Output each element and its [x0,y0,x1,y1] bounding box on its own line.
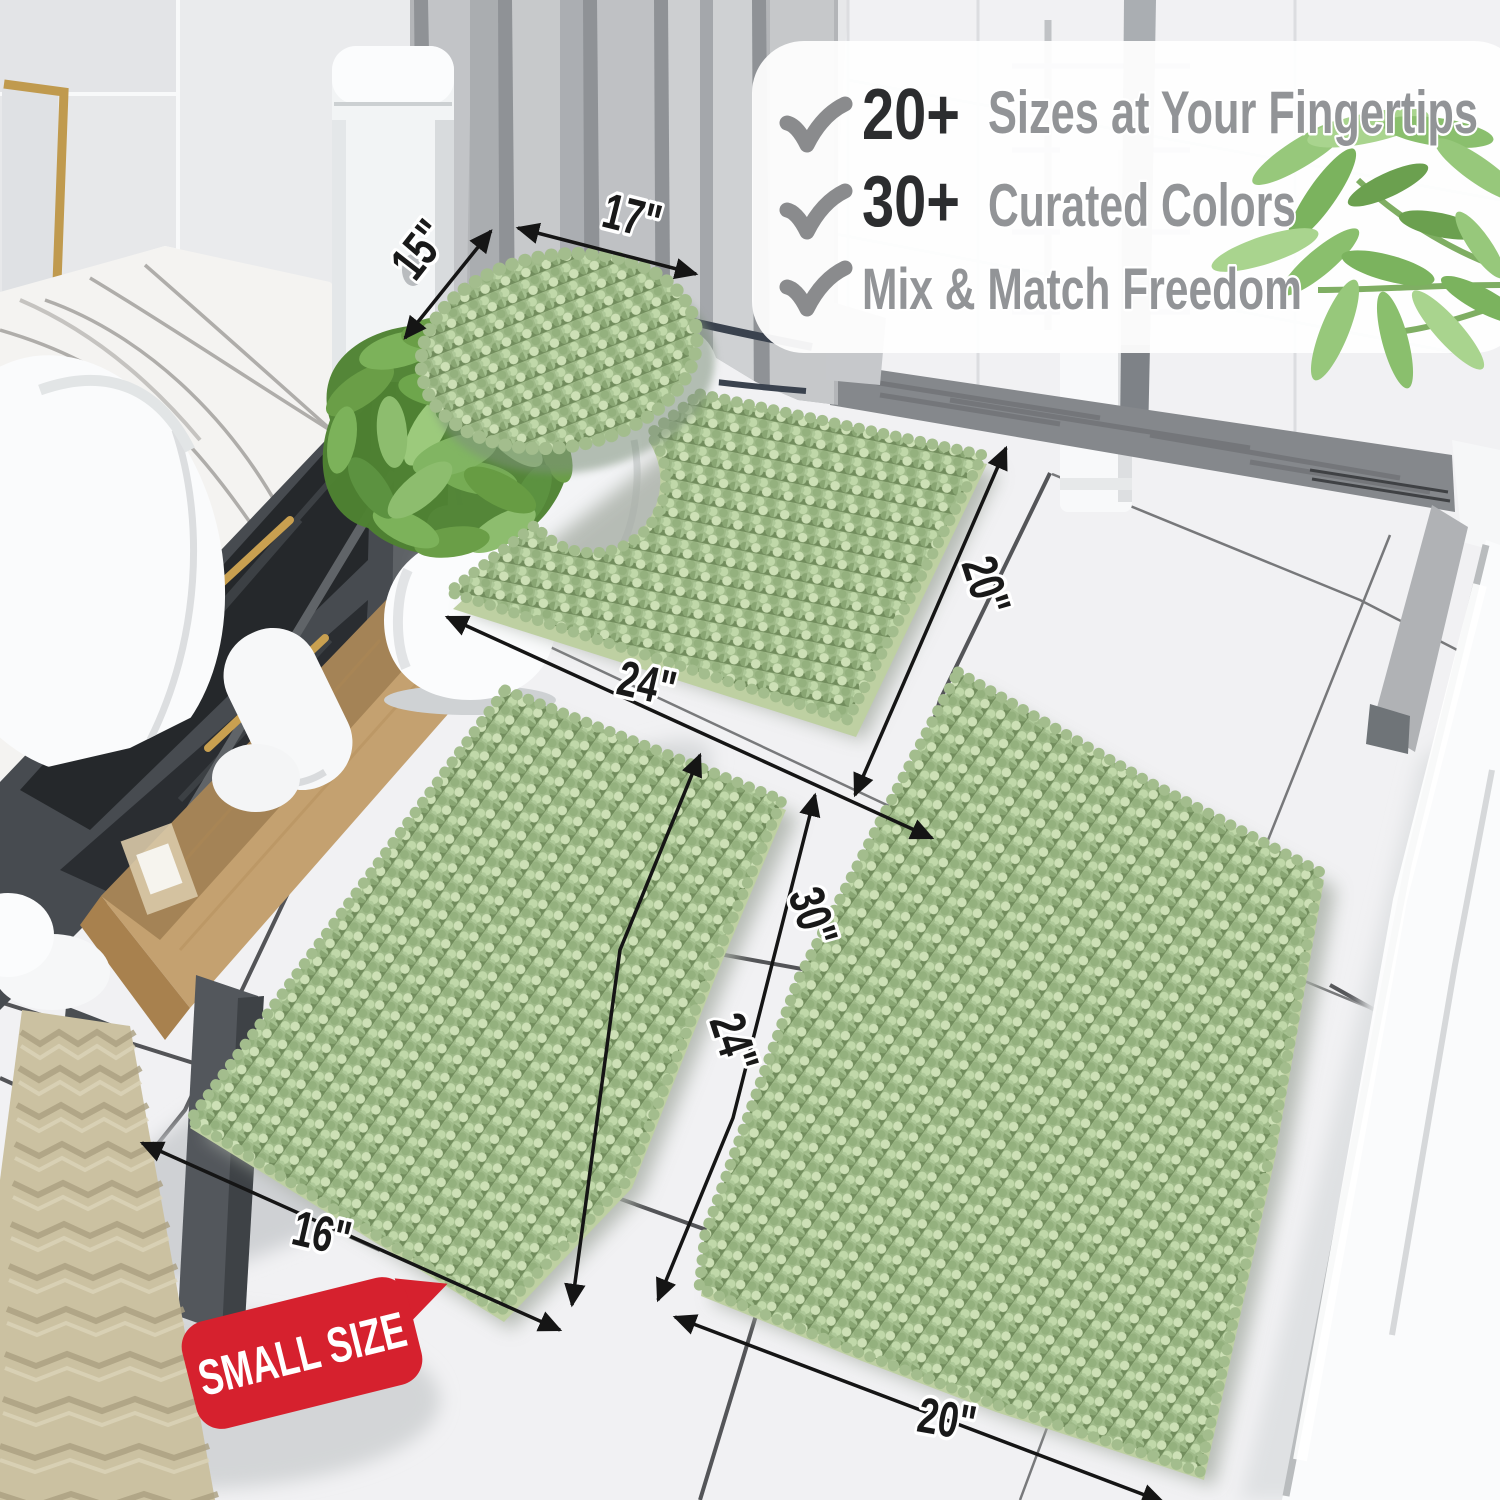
svg-text:Sizes at Your Fingertips: Sizes at Your Fingertips [988,79,1478,146]
svg-text:30+: 30+ [862,162,960,242]
svg-text:20+: 20+ [862,75,960,155]
svg-text:Curated Colors: Curated Colors [988,172,1296,239]
svg-text:20": 20" [914,1387,981,1452]
svg-text:Mix & Match Freedom: Mix & Match Freedom [862,257,1302,322]
